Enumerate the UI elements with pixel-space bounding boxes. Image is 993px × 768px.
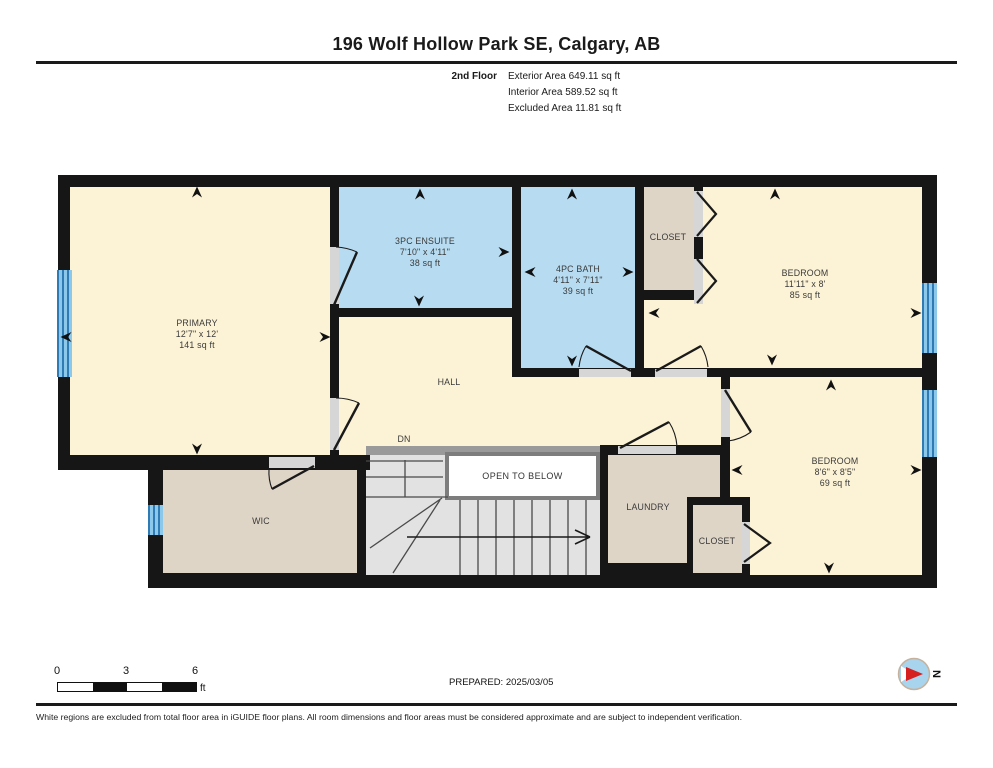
room-laundry-upper xyxy=(608,455,720,497)
interior-area: Interior Area 589.52 sq ft xyxy=(508,87,618,98)
door-gap-laundry xyxy=(618,446,676,454)
scale-bar xyxy=(57,682,197,692)
window-bedroom-bottom xyxy=(922,390,937,457)
floorplan-page: 196 Wolf Hollow Park SE, Calgary, AB 2nd… xyxy=(0,0,993,768)
label-bath: 4PC BATH 4'11" x 7'11" 39 sq ft xyxy=(518,264,638,297)
label-closet-top: CLOSET xyxy=(628,232,708,243)
floor-label: 2nd Floor xyxy=(380,71,497,82)
label-bedroom-bottom: BEDROOM 8'6" x 8'5" 69 sq ft xyxy=(765,456,905,489)
door-gap-ensuite xyxy=(330,247,339,304)
room-bedroom-bottom-lower xyxy=(750,497,922,575)
room-bedroom-top-entry xyxy=(644,300,703,368)
label-stairs-dn: DN xyxy=(389,434,419,445)
page-title: 196 Wolf Hollow Park SE, Calgary, AB xyxy=(0,34,993,55)
compass-north-label: N xyxy=(930,670,942,678)
exterior-area: Exterior Area 649.11 sq ft xyxy=(508,71,620,82)
prepared-date: PREPARED: 2025/03/05 xyxy=(449,677,553,688)
door-gap-closet-top-1 xyxy=(694,191,703,237)
door-gap-primary xyxy=(330,398,339,450)
open-to-below-label: OPEN TO BELOW xyxy=(482,471,562,481)
scale-tick-6: 6 xyxy=(187,665,203,677)
window-wic xyxy=(148,505,163,535)
footer-divider xyxy=(36,703,957,706)
label-ensuite: 3PC ENSUITE 7'10" x 4'11" 38 sq ft xyxy=(355,236,495,269)
label-wic: WIC xyxy=(221,516,301,527)
label-laundry: LAUNDRY xyxy=(608,502,688,513)
window-primary xyxy=(57,270,72,377)
compass-icon: N xyxy=(893,652,957,700)
header-divider xyxy=(36,61,957,64)
door-gap-closet-top-2 xyxy=(694,259,703,304)
scale-tick-3: 3 xyxy=(118,665,134,677)
door-gap-wic xyxy=(269,457,315,468)
open-to-below-box: OPEN TO BELOW xyxy=(445,452,600,500)
scale-unit: ft xyxy=(200,683,206,694)
door-gap-bath xyxy=(579,369,631,377)
excluded-area: Excluded Area 11.81 sq ft xyxy=(508,103,621,114)
door-gap-bedroom-bottom xyxy=(721,389,730,437)
door-gap-bedroom-top xyxy=(655,369,707,377)
scale-tick-0: 0 xyxy=(49,665,65,677)
label-hall: HALL xyxy=(409,377,489,388)
wall-primary-bottom xyxy=(58,455,370,470)
disclaimer-text: White regions are excluded from total fl… xyxy=(36,712,957,722)
label-bedroom-top: BEDROOM 11'11" x 8' 85 sq ft xyxy=(735,268,875,301)
window-bedroom-top xyxy=(922,283,937,353)
label-closet-bottom: CLOSET xyxy=(677,536,757,547)
label-primary: PRIMARY 12'7" x 12' 141 sq ft xyxy=(127,318,267,351)
